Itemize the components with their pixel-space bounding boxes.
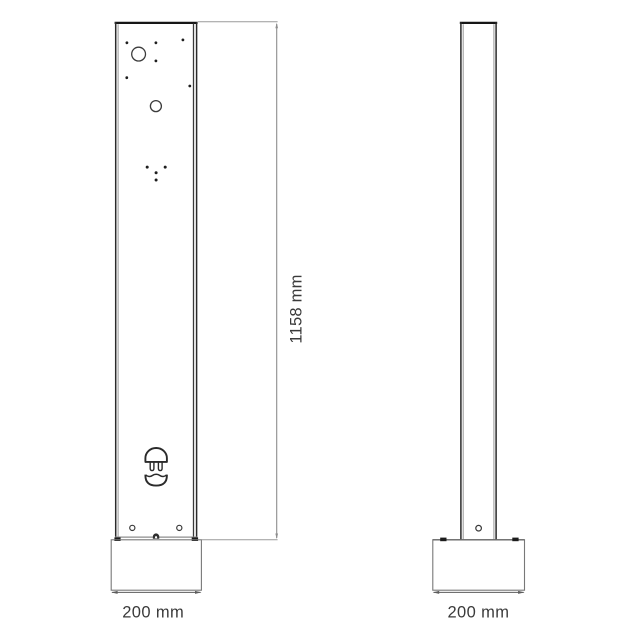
svg-text:200 mm: 200 mm [122,604,184,622]
svg-text:1158 mm: 1158 mm [288,274,306,343]
svg-text:200 mm: 200 mm [447,604,509,622]
